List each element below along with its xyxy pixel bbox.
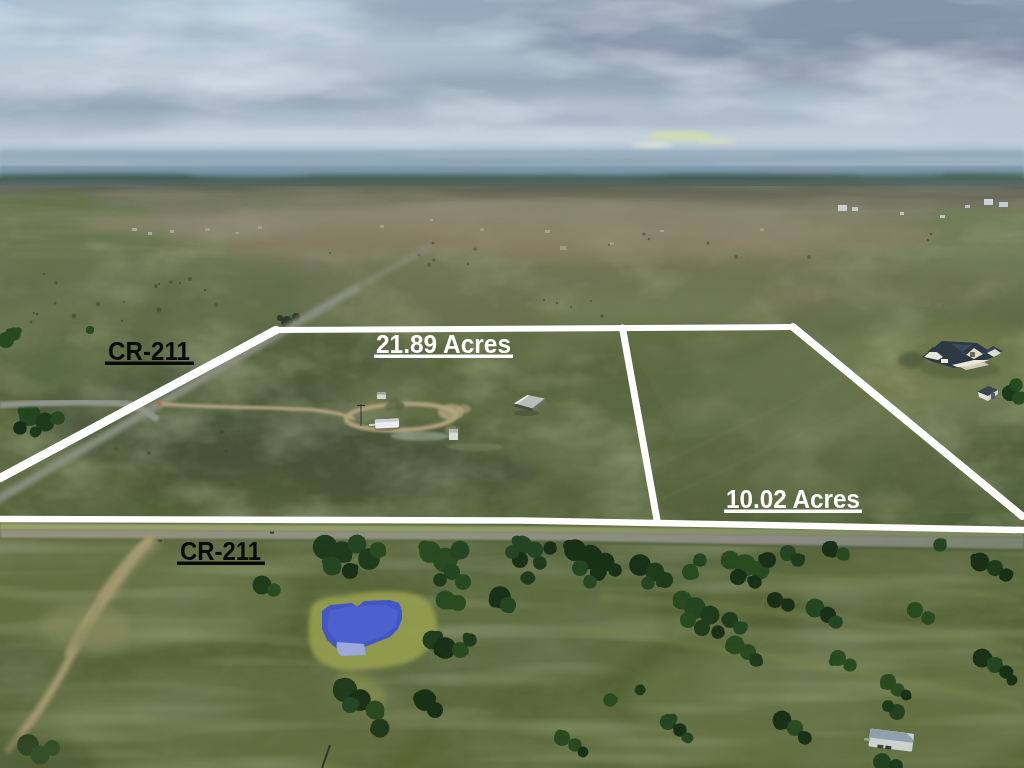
svg-text:10.02 Acres: 10.02 Acres — [726, 485, 860, 513]
svg-text:21.89 Acres: 21.89 Acres — [376, 330, 511, 358]
